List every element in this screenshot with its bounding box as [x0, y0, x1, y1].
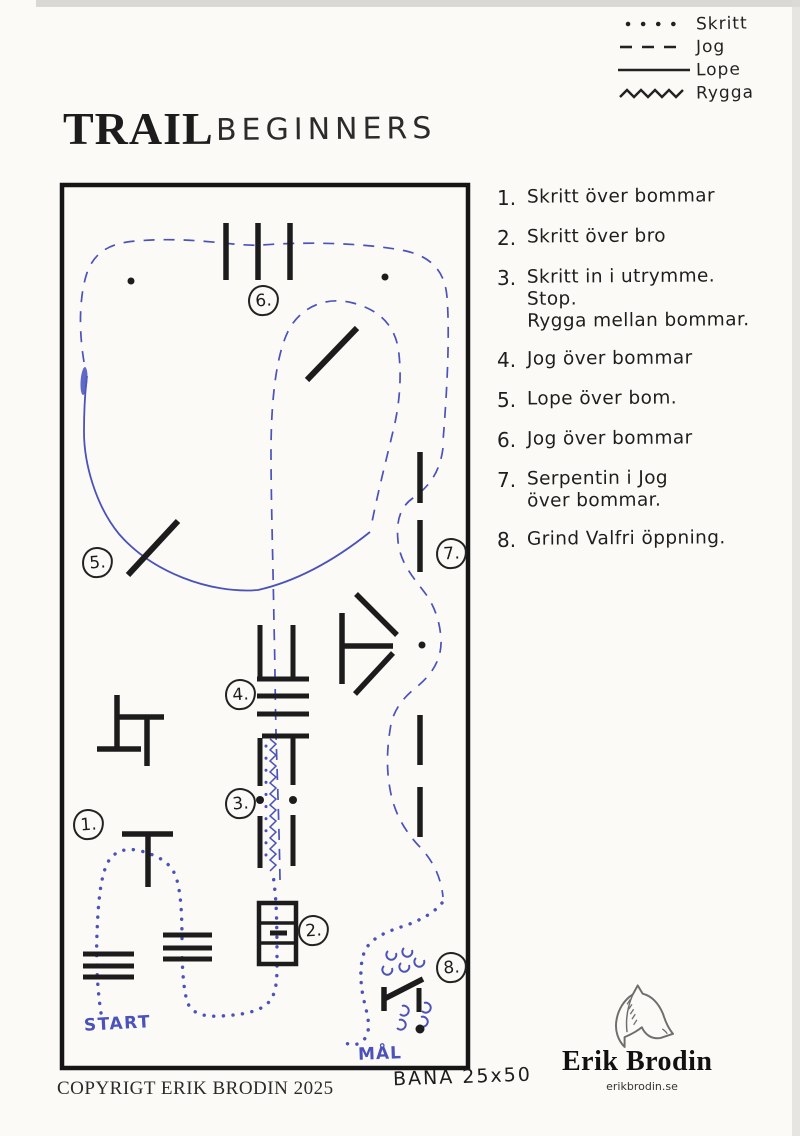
instruction-text: Grind Valfri öppning. — [527, 527, 726, 552]
jog-path-centre-loop — [271, 301, 400, 880]
jog-path-top-loop — [80, 240, 448, 441]
instruction-list: 1. Skritt över bommar 2. Skritt över bro… — [497, 186, 797, 568]
pen-blob — [80, 367, 89, 395]
instruction-item-4: 4. Jog över bommar — [497, 348, 797, 372]
legend-row-jog: Jog — [616, 35, 796, 58]
instruction-text: Skritt över bro — [527, 226, 666, 251]
lope-path — [84, 376, 370, 590]
instruction-text: Skritt in i utrymme. Stop. Rygga mellan … — [527, 265, 750, 333]
course-map-drawing — [0, 0, 800, 1136]
jog-path-serpentine — [387, 448, 443, 897]
stop-dot-left — [256, 796, 264, 804]
diagonal-pole-middle — [307, 328, 357, 380]
instruction-number: 8. — [497, 528, 527, 552]
legend-row-skritt: Skritt — [616, 12, 796, 35]
rygga-line-sample — [616, 86, 696, 100]
instruction-item-3: 3. Skritt in i utrymme. Stop. Rygga mell… — [497, 266, 797, 332]
cone-dot-left — [128, 278, 135, 285]
instruction-text: Jog över bommar — [527, 347, 693, 372]
instruction-item-6: 6. Jog över bommar — [497, 428, 797, 452]
logo-name: Erik Brodin — [562, 1046, 712, 1078]
cone-dot-right — [382, 274, 389, 281]
walk-poles-a — [83, 954, 134, 977]
page-subtitle: BEGINNERS — [216, 111, 437, 148]
walk-poles-b — [163, 935, 212, 959]
legend-label: Jog — [696, 36, 726, 57]
legend-label: Skritt — [696, 13, 748, 34]
instruction-text: Skritt över bommar — [527, 185, 715, 210]
lope-line-sample — [616, 65, 696, 75]
instruction-item-8: 8. Grind Valfri öppning. — [497, 528, 797, 552]
scanned-course-sheet: TRAIL BEGINNERS Skritt Jog Lope Rygga — [0, 0, 800, 1136]
goal-label: MÅL — [358, 1043, 403, 1065]
jog-line-sample — [616, 42, 696, 52]
instruction-item-1: 1. Skritt över bommar — [497, 186, 797, 210]
page-title: TRAIL — [63, 102, 214, 155]
instruction-number: 5. — [497, 388, 527, 412]
instruction-item-5: 5. Lope över bom. — [497, 388, 797, 412]
copyright-text: COPYRIGT ERIK BRODIN 2025 — [57, 1078, 334, 1100]
gate-obstacle — [384, 979, 423, 1012]
legend-row-rygga: Rygga — [616, 81, 796, 104]
instruction-text: Lope över bom. — [527, 387, 677, 412]
instruction-text: Serpentin i Jog över bommar. — [527, 468, 668, 513]
obstacle-5-pole — [128, 521, 178, 575]
instruction-number: 1. — [497, 186, 527, 210]
legend-label: Rygga — [696, 82, 754, 103]
scan-edge-right — [792, 0, 800, 1136]
logo-url: erikbrodin.se — [562, 1080, 722, 1093]
legend-row-lope: Lope — [616, 58, 796, 81]
obstacles — [83, 223, 426, 1034]
scan-edge-top — [36, 0, 800, 7]
stop-dot-right — [289, 796, 297, 804]
legend-label: Lope — [696, 59, 741, 80]
obstacle-6-poles — [226, 223, 290, 280]
instruction-item-2: 2. Skritt över bro — [497, 226, 797, 250]
corner-obstacle — [97, 695, 164, 766]
t-obstacle — [122, 834, 173, 887]
instruction-number: 4. — [497, 348, 527, 372]
legend: Skritt Jog Lope Rygga — [616, 12, 796, 104]
goal-dot — [416, 1025, 425, 1034]
instruction-number: 7. — [497, 468, 527, 512]
obstacle-3 — [260, 736, 309, 868]
start-label: START — [84, 1012, 152, 1035]
instruction-text: Jog över bommar — [527, 427, 693, 452]
instruction-number: 2. — [497, 226, 527, 250]
instruction-number: 6. — [497, 428, 527, 452]
obstacle-4 — [257, 625, 309, 714]
instruction-number: 3. — [497, 266, 527, 332]
instruction-item-7: 7. Serpentin i Jog över bommar. — [497, 468, 797, 512]
horse-head-icon — [616, 985, 673, 1046]
cone-dot-arrow — [419, 642, 426, 649]
arrow-obstacle — [342, 594, 397, 694]
rygga-zigzag — [270, 739, 276, 871]
skritt-line-sample — [616, 19, 696, 29]
arena-border — [62, 185, 468, 1068]
